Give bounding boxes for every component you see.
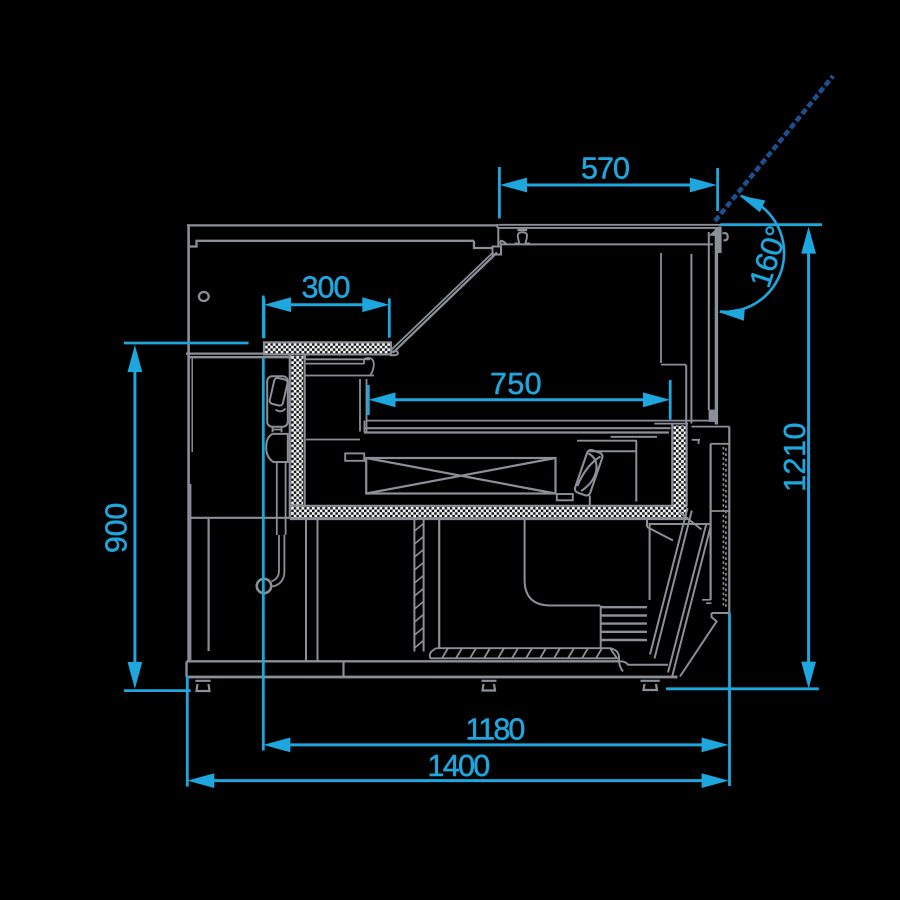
svg-text:750: 750 bbox=[490, 367, 542, 401]
svg-text:570: 570 bbox=[581, 152, 629, 186]
svg-text:1180: 1180 bbox=[466, 713, 525, 747]
svg-text:300: 300 bbox=[302, 271, 350, 305]
svg-text:900: 900 bbox=[100, 503, 134, 553]
svg-text:1210: 1210 bbox=[778, 422, 812, 492]
svg-text:1400: 1400 bbox=[427, 749, 489, 783]
